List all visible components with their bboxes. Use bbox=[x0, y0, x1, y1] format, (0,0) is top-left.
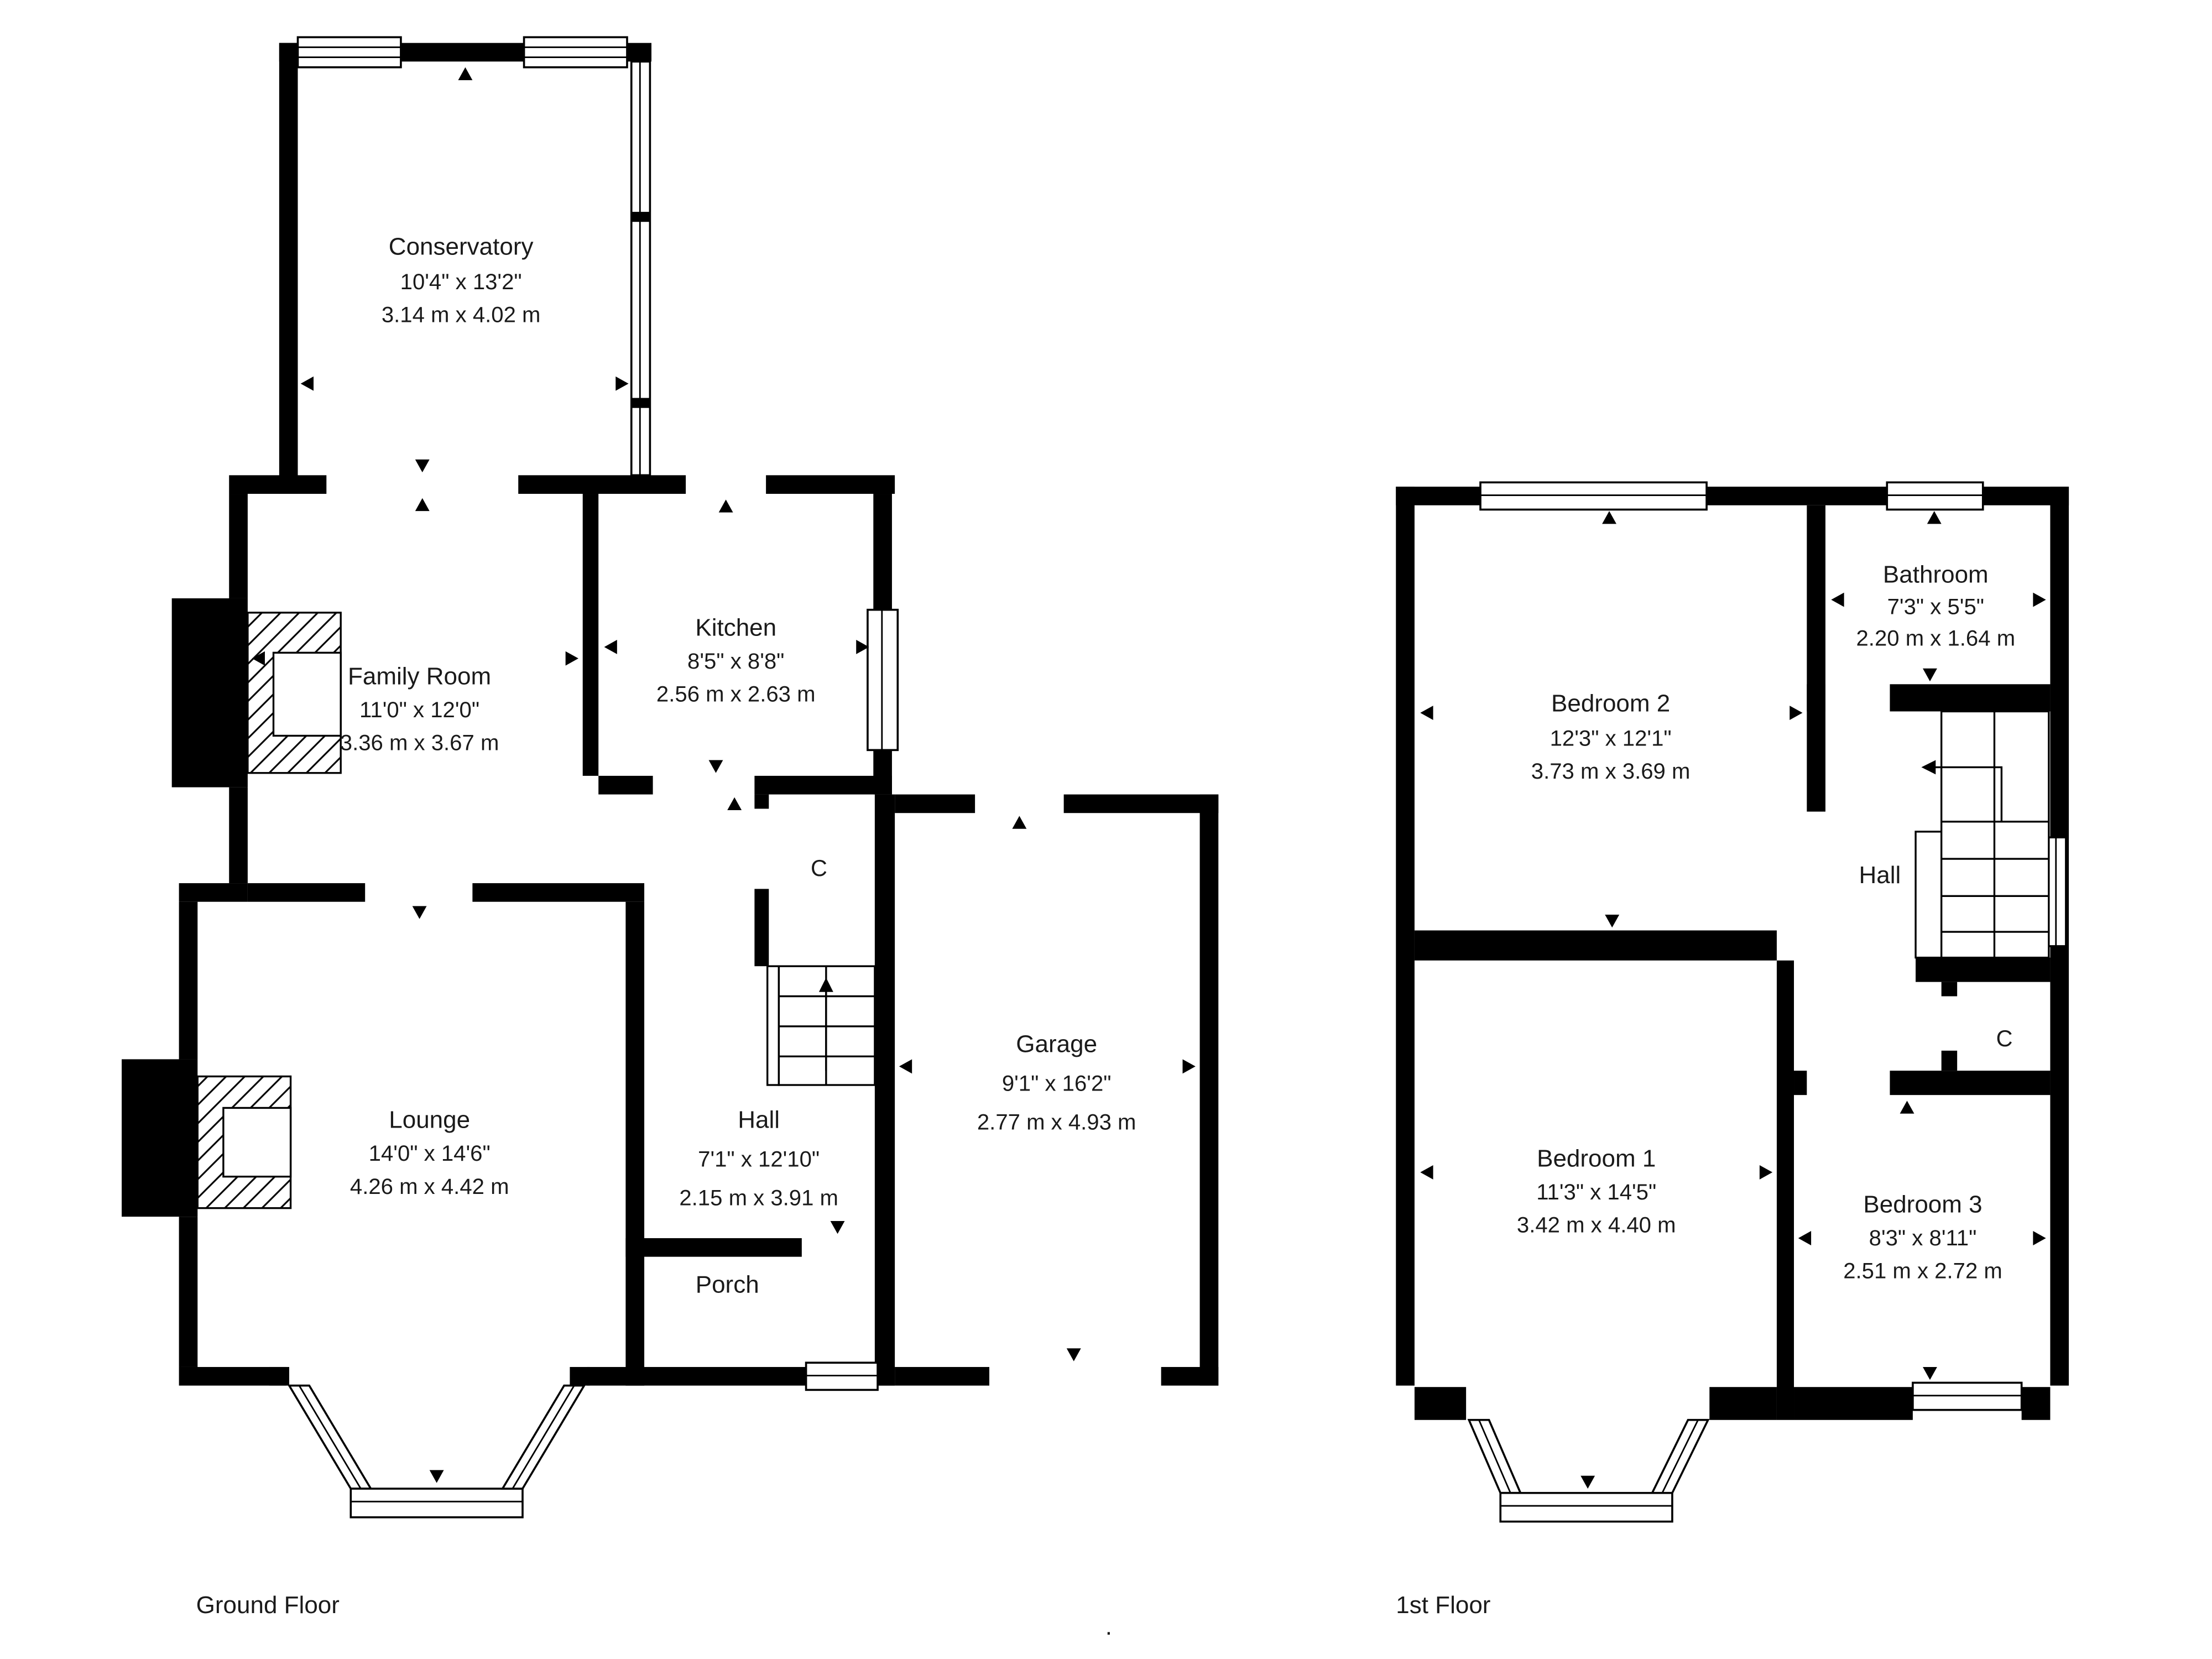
room-dims-metric-garage: 2.77 m x 4.93 m bbox=[977, 1109, 1136, 1134]
room-label-bedroom-2: Bedroom 2 bbox=[1551, 690, 1670, 717]
room-dims-metric-conservatory: 3.14 m x 4.02 m bbox=[382, 302, 541, 327]
floor-plan-image: Conservatory 10'4" x 13'2" 3.14 m x 4.02… bbox=[0, 0, 2212, 1659]
ground-floor-title: Ground Floor bbox=[196, 1592, 340, 1619]
room-label-bedroom-3: Bedroom 3 bbox=[1863, 1191, 1982, 1218]
room-label-garage: Garage bbox=[1016, 1031, 1097, 1058]
room-label-hall-first: Hall bbox=[1859, 862, 1901, 889]
room-dims-metric-bathroom: 2.20 m x 1.64 m bbox=[1856, 625, 2016, 650]
room-dims-imperial-conservatory: 10'4" x 13'2" bbox=[400, 269, 522, 294]
room-dims-imperial-bedroom-2: 12'3" x 12'1" bbox=[1550, 726, 1672, 751]
room-dims-metric-bedroom-2: 3.73 m x 3.69 m bbox=[1531, 759, 1691, 784]
room-dims-imperial-kitchen: 8'5" x 8'8" bbox=[687, 649, 784, 674]
room-dims-metric-kitchen: 2.56 m x 2.63 m bbox=[656, 681, 816, 706]
ground-floor-stairs bbox=[768, 966, 875, 1085]
room-dims-imperial-bedroom-1: 11'3" x 14'5" bbox=[1536, 1180, 1656, 1204]
room-dims-metric-lounge: 4.26 m x 4.42 m bbox=[350, 1174, 509, 1199]
room-label-lounge: Lounge bbox=[389, 1107, 470, 1134]
room-dims-imperial-hall-ground: 7'1" x 12'10" bbox=[698, 1147, 820, 1172]
room-label-closet-ground: C bbox=[811, 855, 827, 881]
room-label-bathroom: Bathroom bbox=[1883, 561, 1989, 588]
room-dims-imperial-bedroom-3: 8'3" x 8'11" bbox=[1869, 1225, 1977, 1250]
first-floor-title: 1st Floor bbox=[1396, 1592, 1490, 1619]
room-dims-metric-bedroom-1: 3.42 m x 4.40 m bbox=[1517, 1213, 1676, 1238]
room-dims-metric-bedroom-3: 2.51 m x 2.72 m bbox=[1843, 1258, 2002, 1283]
room-dims-metric-family-room: 3.36 m x 3.67 m bbox=[340, 730, 499, 755]
room-label-closet-first: C bbox=[1996, 1026, 2013, 1051]
room-dims-metric-hall-ground: 2.15 m x 3.91 m bbox=[679, 1185, 838, 1210]
room-label-porch: Porch bbox=[696, 1271, 759, 1298]
room-dims-imperial-lounge: 14'0" x 14'6" bbox=[369, 1141, 491, 1166]
room-dims-imperial-garage: 9'1" x 16'2" bbox=[1002, 1071, 1112, 1095]
room-label-bedroom-1: Bedroom 1 bbox=[1537, 1145, 1656, 1172]
room-label-hall-ground: Hall bbox=[738, 1107, 780, 1134]
room-label-family-room: Family Room bbox=[348, 662, 491, 690]
room-dims-imperial-family-room: 11'0" x 12'0" bbox=[359, 697, 479, 722]
room-label-conservatory: Conservatory bbox=[389, 233, 534, 260]
footnote-dot: . bbox=[1105, 1613, 1112, 1640]
room-dims-imperial-bathroom: 7'3" x 5'5" bbox=[1887, 594, 1984, 619]
room-label-kitchen: Kitchen bbox=[695, 614, 776, 641]
